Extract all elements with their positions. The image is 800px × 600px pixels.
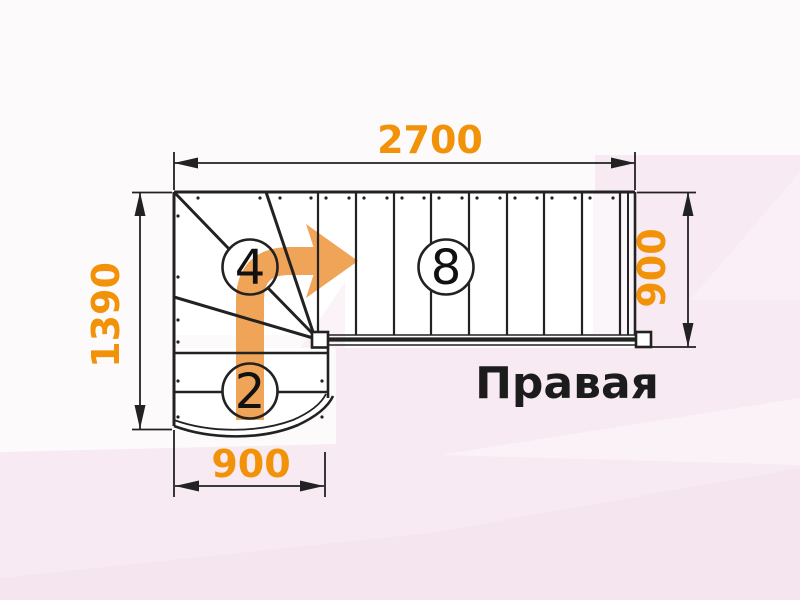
dimension-right-label: 900 xyxy=(630,228,674,307)
lower-steps-count: 2 xyxy=(235,364,266,420)
winder-steps-count: 4 xyxy=(235,240,266,296)
direction-label: Правая xyxy=(475,358,659,409)
dimension-left-label: 1390 xyxy=(84,262,128,368)
dimension-bottom-label: 900 xyxy=(211,442,290,486)
newel-post-right xyxy=(636,332,651,347)
straight-steps-count: 8 xyxy=(431,240,462,296)
newel-post-left xyxy=(312,332,328,348)
staircase-plan-diagram: 4 8 2 2700 1390 900 900 Правая xyxy=(0,0,800,600)
dimension-top-label: 2700 xyxy=(377,118,483,162)
